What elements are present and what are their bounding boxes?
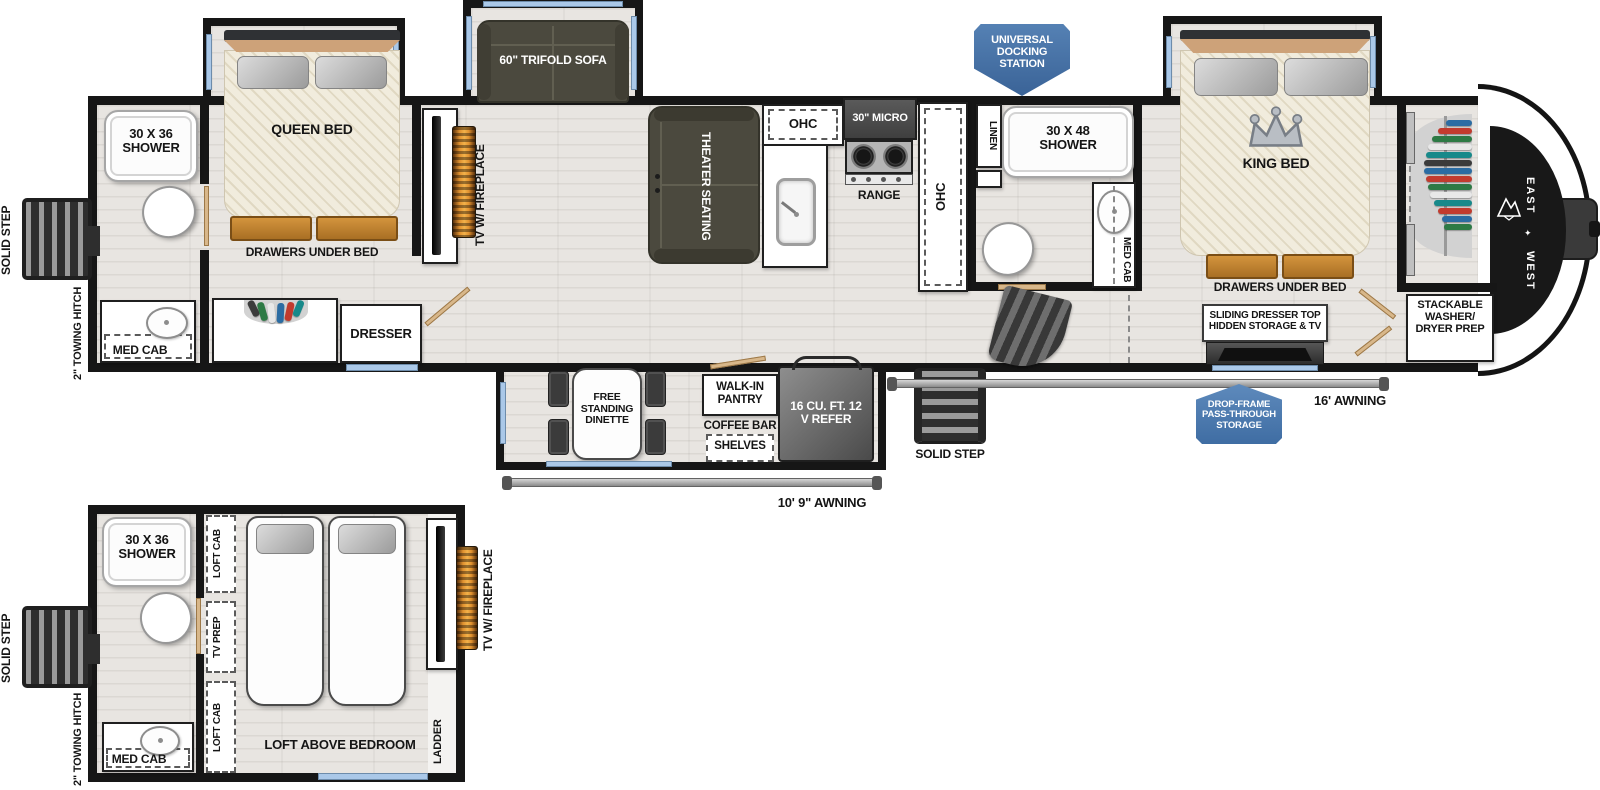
- brand-logo-east: EAST: [1524, 166, 1536, 226]
- dinette-chair: [645, 419, 666, 455]
- solid-step-label: SOLID STEP: [0, 198, 16, 282]
- bath-door: [204, 186, 209, 246]
- clothes-item: [1428, 144, 1472, 150]
- dresser-label: DRESSER: [342, 327, 420, 341]
- washer-dryer-label: STACKABLE WASHER/ DRYER PREP: [1412, 299, 1488, 335]
- clothes-item: [1438, 128, 1472, 134]
- closet-door-panel: [1406, 224, 1415, 276]
- drawers-under-bed-label: DRAWERS UNDER BED: [1185, 281, 1375, 294]
- king-bed-label: KING BED: [1216, 156, 1336, 171]
- awning-10-label: 10' 9" AWNING: [762, 496, 882, 510]
- king-headboard-wood: [1180, 39, 1370, 53]
- drop-frame-label: DROP-FRAME PASS-THROUGH STORAGE: [1200, 400, 1278, 431]
- knob: [881, 177, 886, 182]
- wall: [196, 513, 204, 598]
- tv-prep-label: TV PREP: [212, 607, 230, 667]
- knob: [851, 177, 856, 182]
- floorplan-diagram: EAST ✦ WEST SOLID STEP 2" TOWING HITCH 3…: [0, 0, 1600, 790]
- med-cab-label: MED CAB: [104, 344, 176, 357]
- clothes-item: [276, 303, 284, 323]
- tv-fireplace-loft-label: TV W/ FIREPLACE: [482, 525, 500, 675]
- cupholder: [655, 174, 660, 179]
- awning-cap: [1379, 377, 1389, 391]
- clothes-item: [1430, 192, 1472, 198]
- ohc-kitchen-label: OHC: [770, 117, 836, 131]
- tv-icon: [432, 116, 441, 255]
- loft-cab-label: LOFT CAB: [212, 693, 230, 763]
- clothes-item: [1428, 184, 1472, 190]
- clothes-item: [1434, 200, 1472, 206]
- tv-icon: [1218, 348, 1312, 361]
- pantry-label: WALK-IN PANTRY: [706, 381, 774, 406]
- tv-fireplace-label: TV W/ FIREPLACE: [474, 120, 492, 270]
- pillow: [1284, 58, 1368, 96]
- solid-step-label: SOLID STEP: [0, 606, 16, 690]
- theater-seating-label: THEATER SEATING: [694, 116, 712, 256]
- drain: [158, 738, 163, 743]
- dinette-chair: [548, 419, 569, 455]
- dinette-label: FREE STANDING DINETTE: [577, 392, 637, 427]
- cupholder: [655, 188, 660, 193]
- queen-headboard-wood: [224, 40, 400, 52]
- loft-above-bedroom-label: LOFT ABOVE BEDROOM: [240, 738, 440, 752]
- docking-station-label: UNIVERSAL DOCKING STATION: [981, 34, 1063, 70]
- burner: [883, 144, 908, 169]
- clothes-item: [1424, 160, 1472, 166]
- drain: [794, 212, 799, 217]
- bed-drawer: [1206, 254, 1278, 279]
- dinette-chair: [645, 371, 666, 407]
- awning-cap: [872, 476, 882, 490]
- knob: [866, 177, 871, 182]
- shower-30x48-label: 30 X 48 SHOWER: [1030, 124, 1106, 153]
- loft-cab-label: LOFT CAB: [212, 521, 230, 587]
- pillow: [315, 56, 387, 89]
- wall: [1397, 104, 1406, 291]
- wall: [412, 104, 421, 256]
- ohc-tall-label: OHC: [934, 160, 952, 234]
- window: [206, 34, 212, 90]
- pillow: [237, 56, 309, 89]
- tv-icon: [436, 526, 445, 662]
- solid-step-entry-label: SOLID STEP: [900, 448, 1000, 461]
- wall: [196, 654, 204, 774]
- refer-handles: [792, 356, 862, 370]
- window: [546, 461, 672, 467]
- pillow: [1194, 58, 1278, 96]
- wall: [200, 104, 209, 184]
- clothes-item: [1426, 152, 1472, 158]
- burner: [851, 144, 876, 169]
- awning-cap: [502, 476, 512, 490]
- pillow: [256, 524, 314, 554]
- step-edge-dashed: [1128, 295, 1130, 363]
- trifold-sofa-label: 60" TRIFOLD SOFA: [483, 54, 623, 67]
- bed-drawer: [230, 216, 312, 241]
- sofa-seam: [491, 44, 615, 46]
- bed-drawer: [316, 216, 398, 241]
- sliding-dresser-label: SLIDING DRESSER TOP HIDDEN STORAGE & TV: [1205, 310, 1325, 332]
- hitch-connector: [86, 634, 100, 664]
- brand-logo-west: WEST: [1524, 240, 1536, 302]
- knob: [896, 177, 901, 182]
- hitch-steps-icon: [22, 606, 92, 688]
- shower-30x36-loft-label: 30 X 36 SHOWER: [108, 533, 186, 562]
- clothes-item: [1424, 168, 1472, 174]
- coffee-bar-label: COFFEE BAR: [702, 420, 778, 433]
- awning-16-rail: [893, 379, 1383, 388]
- window: [483, 1, 623, 7]
- window: [346, 364, 418, 371]
- micro-label: 30" MICRO: [843, 112, 917, 124]
- closet-door-panel: [1406, 112, 1415, 164]
- clothes-item: [1432, 136, 1472, 142]
- crown-icon: [1242, 106, 1310, 156]
- window: [1370, 36, 1376, 88]
- range-label: RANGE: [839, 189, 919, 202]
- window: [466, 16, 472, 90]
- star-icon: ✦: [1524, 228, 1532, 239]
- fireplace-icon: [456, 546, 478, 650]
- dinette-chair: [548, 371, 569, 407]
- med-cab-dash: [1113, 186, 1115, 284]
- shelves-label: SHELVES: [708, 440, 772, 453]
- closet-door-track: [1409, 166, 1411, 222]
- med-cab-2-label: MED CAB: [1116, 234, 1132, 286]
- refer-label: 16 CU. FT. 12 V REFER: [788, 400, 864, 426]
- linen-label: LINEN: [980, 110, 998, 162]
- drain: [164, 320, 169, 325]
- queen-bed-label: QUEEN BED: [252, 122, 372, 137]
- drawers-under-bed-label: DRAWERS UNDER BED: [222, 246, 402, 259]
- loft-bath-door: [196, 598, 201, 654]
- mountain-logo-icon: [1496, 192, 1522, 222]
- shower-30x36-label: 30 X 36 SHOWER: [112, 127, 190, 156]
- med-cab-loft-label: MED CAB: [104, 753, 174, 766]
- ladder-label: LADDER: [432, 712, 450, 772]
- hitch-steps-icon: [22, 198, 92, 280]
- towing-hitch-label: 2" TOWING HITCH: [72, 284, 88, 382]
- awning-cap: [887, 377, 897, 391]
- window: [1166, 36, 1172, 88]
- clothes-item: [1438, 208, 1472, 214]
- towing-hitch-label: 2" TOWING HITCH: [72, 690, 88, 788]
- linen-shelf: [976, 170, 1002, 188]
- clothes-item: [1426, 176, 1472, 182]
- clothes-item: [1442, 216, 1472, 222]
- kingpin-pin: [1589, 221, 1600, 237]
- window: [318, 773, 428, 780]
- pillow: [338, 524, 396, 554]
- awning-10-rail: [508, 478, 876, 487]
- window: [631, 16, 637, 90]
- wall: [200, 250, 209, 365]
- window: [500, 382, 506, 444]
- window: [1212, 365, 1318, 371]
- bed-drawer: [1282, 254, 1354, 279]
- clothes-item: [1446, 120, 1472, 126]
- hitch-connector: [86, 226, 100, 256]
- awning-16-label: 16' AWNING: [1300, 394, 1400, 408]
- clothes-item: [1444, 224, 1472, 230]
